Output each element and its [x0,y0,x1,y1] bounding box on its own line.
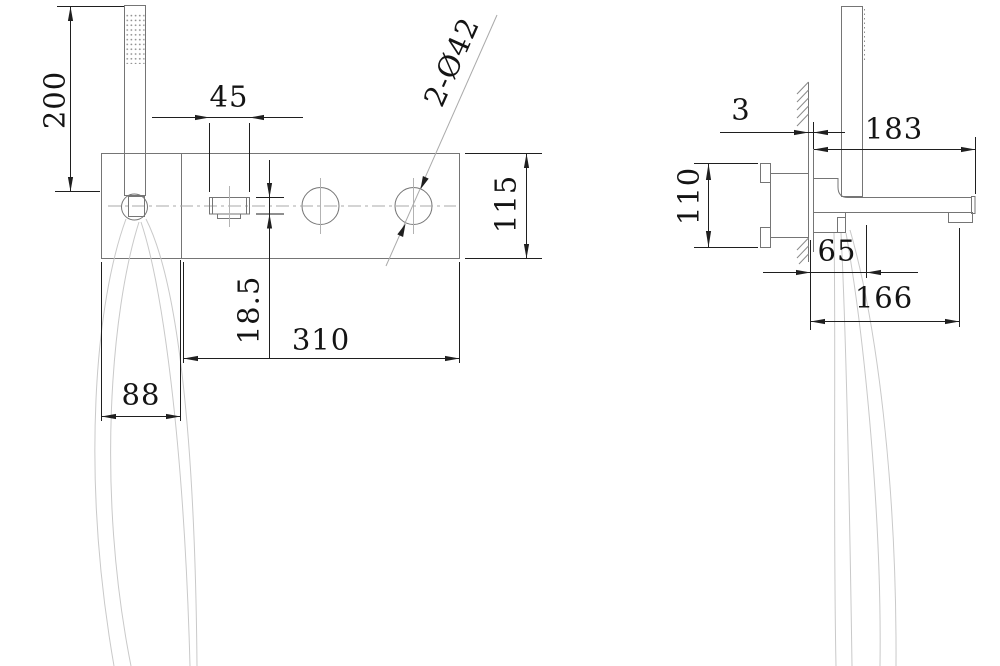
dim-label-88: 88 [122,381,161,410]
faucet-plate-front [102,154,460,259]
dim-label-310: 310 [292,326,350,355]
technical-drawing-canvas: 200 45 2-Ø42 115 18.5 310 88 3 183 110 6… [0,0,1000,666]
aerator [949,213,973,223]
dim-label-115: 115 [492,175,521,233]
hose-front [95,219,197,666]
drawing-geometry [0,0,1000,666]
dim-label-3: 3 [731,96,750,125]
hand-shower-front [122,6,148,221]
inlet-connector-bottom [761,228,771,248]
dim-label-65: 65 [818,237,857,266]
inwall-body [761,164,809,248]
dim-label-183: 183 [865,115,923,144]
dim-label-166: 166 [855,284,913,313]
spray-face-dots [127,13,145,64]
spout-tip [972,197,976,214]
inlet-connector-top [761,164,771,183]
dim-label-200: 200 [41,71,70,129]
hand-shower-side [842,7,865,197]
hose-connector-side [838,218,846,233]
dim-label-45: 45 [210,83,249,112]
dim-label-110: 110 [675,167,704,225]
dim-label-18-5: 18.5 [235,276,264,345]
